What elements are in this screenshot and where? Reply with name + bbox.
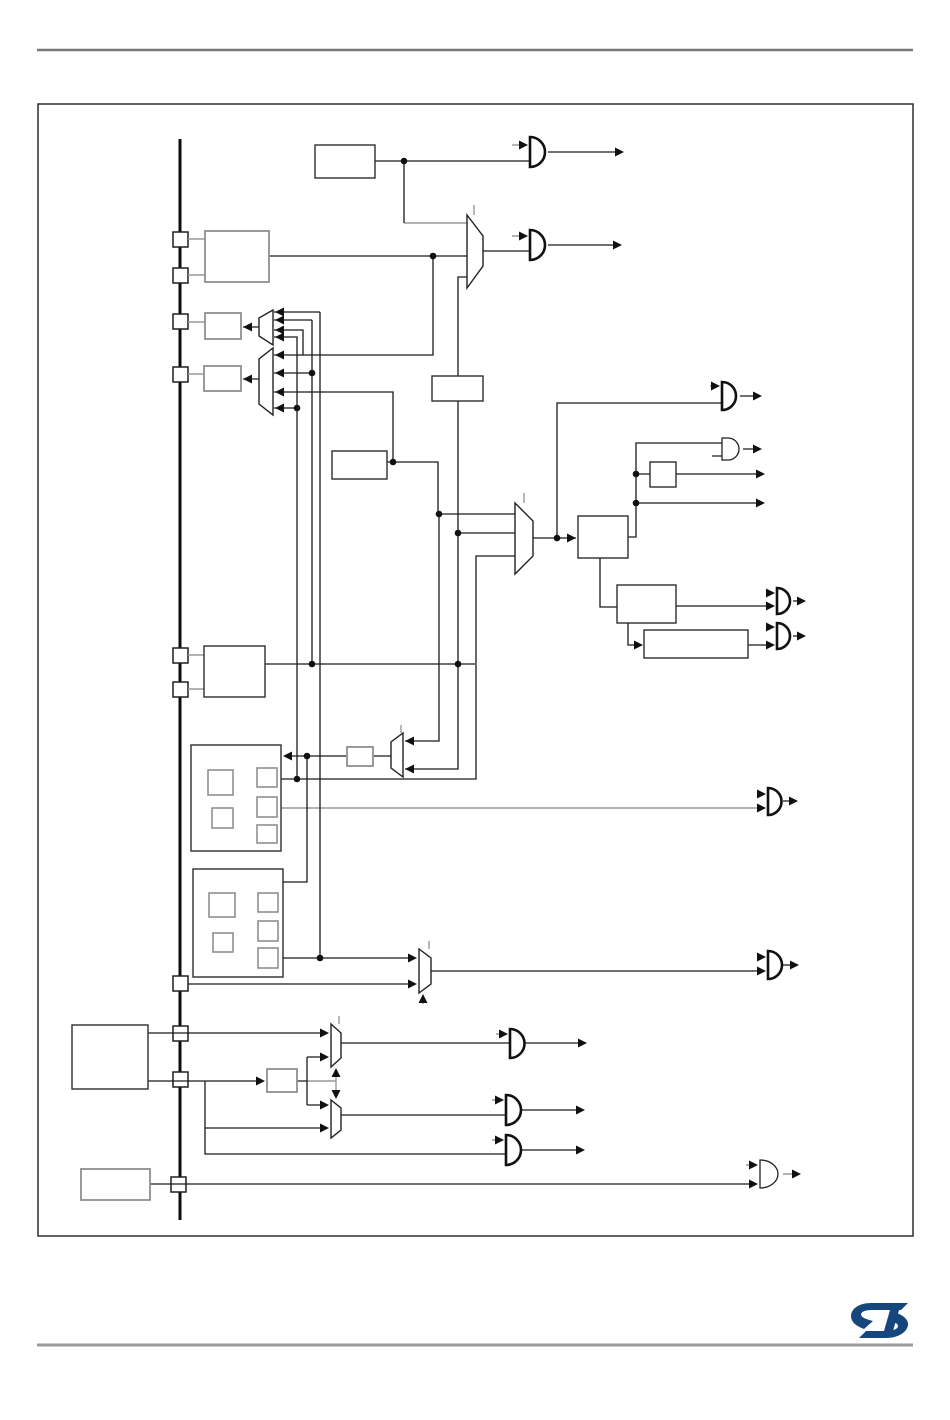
st-logo xyxy=(851,1303,908,1338)
small-select-box xyxy=(267,1069,297,1092)
bus-tap xyxy=(173,1072,188,1087)
and-gate xyxy=(760,1160,778,1188)
bus-tap xyxy=(173,232,188,247)
bus-tap xyxy=(173,268,188,283)
prescaler-box-2 xyxy=(617,585,676,623)
divider-box xyxy=(432,376,483,401)
pll-box xyxy=(578,516,628,558)
and-gate-thin xyxy=(722,438,739,460)
sub-box xyxy=(258,948,278,968)
and-gate xyxy=(768,788,782,815)
sub-box xyxy=(213,933,233,952)
bus-tap xyxy=(173,314,188,329)
pll-source-mux xyxy=(515,503,533,574)
clock-bus xyxy=(171,139,188,1220)
peripheral-mux-1 xyxy=(419,949,431,993)
peripheral-block-box xyxy=(72,1025,148,1089)
sub-box xyxy=(212,808,233,828)
bus-tap xyxy=(173,648,188,663)
bus-tap xyxy=(173,682,188,697)
mco-mux-1 xyxy=(259,310,273,345)
sub-box xyxy=(258,893,278,912)
output-select-box-1 xyxy=(205,313,241,339)
and-gate xyxy=(722,382,736,410)
gray-wires xyxy=(188,145,792,1174)
and-gate xyxy=(506,1095,521,1125)
mco-mux-2 xyxy=(259,348,273,415)
oscillator-box-2 xyxy=(204,646,265,697)
sub-box xyxy=(258,921,278,941)
sub-box xyxy=(257,825,277,843)
sysclk-mux xyxy=(467,215,483,288)
bus-tap xyxy=(173,367,188,382)
sub-box xyxy=(257,768,277,787)
timer-block-2 xyxy=(193,869,283,977)
and-gate xyxy=(506,1135,521,1165)
clock-source-box xyxy=(315,145,375,178)
sub-box xyxy=(209,893,235,917)
small-divider-box-2 xyxy=(347,747,373,766)
and-gate xyxy=(530,137,545,167)
multiplexers xyxy=(259,215,533,1138)
secondary-wire xyxy=(188,145,792,1174)
output-select-box-2 xyxy=(204,366,241,391)
peripheral-mux-3 xyxy=(331,1100,341,1138)
prescaler-box-1 xyxy=(332,451,387,479)
bus-tap xyxy=(173,976,188,991)
peripheral-prescaler-box xyxy=(644,630,748,658)
timer-block-1 xyxy=(191,745,281,851)
and-gate xyxy=(777,588,790,614)
figure-canvas xyxy=(0,0,950,1420)
oscillator-box xyxy=(205,231,269,282)
timer-clock-mux xyxy=(391,733,403,777)
sub-box xyxy=(208,770,233,795)
and-gate xyxy=(510,1029,525,1058)
peripheral-mux-2 xyxy=(331,1024,341,1067)
small-divider-box xyxy=(650,462,676,487)
and-gate xyxy=(777,623,790,649)
datasheet-page xyxy=(0,0,950,1420)
sub-box xyxy=(257,797,277,817)
clock-gates xyxy=(506,137,790,1188)
peripheral-box-bottom xyxy=(81,1169,150,1200)
and-gate xyxy=(768,951,782,979)
and-gate xyxy=(530,230,545,260)
